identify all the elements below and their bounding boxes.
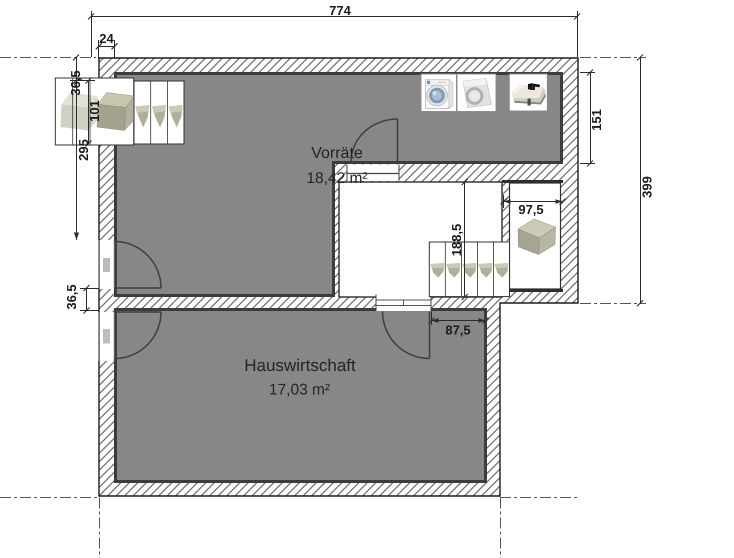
svg-text:18,42 m²: 18,42 m² <box>306 170 367 187</box>
svg-text:101: 101 <box>87 100 102 122</box>
svg-text:87,5: 87,5 <box>445 323 470 338</box>
svg-text:24: 24 <box>99 31 114 46</box>
svg-text:Vorräte: Vorräte <box>311 145 363 162</box>
svg-text:774: 774 <box>329 3 351 18</box>
svg-text:188,5: 188,5 <box>449 224 464 257</box>
svg-text:399: 399 <box>640 176 655 198</box>
svg-text:17,03 m²: 17,03 m² <box>269 382 330 399</box>
svg-text:Hauswirtschaft: Hauswirtschaft <box>244 356 356 375</box>
svg-text:36,5: 36,5 <box>68 70 83 95</box>
svg-text:97,5: 97,5 <box>518 202 543 217</box>
svg-text:295: 295 <box>76 139 91 161</box>
svg-text:36,5: 36,5 <box>64 284 79 309</box>
svg-text:151: 151 <box>589 109 604 131</box>
